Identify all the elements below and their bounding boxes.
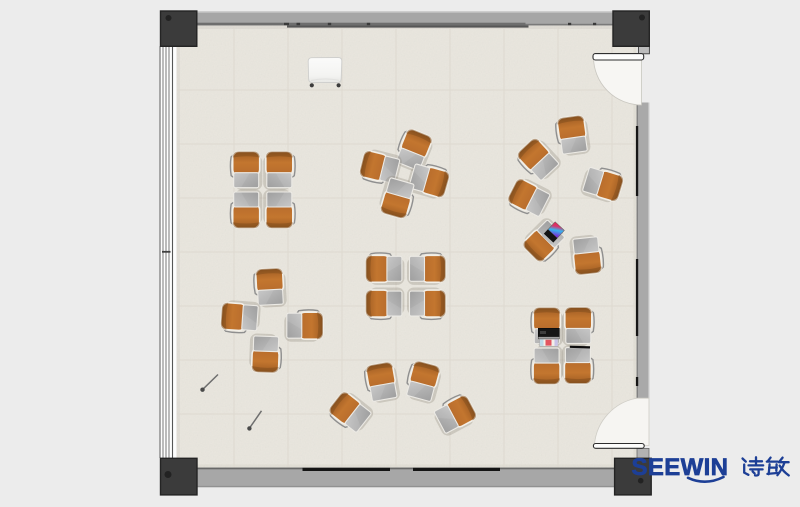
svg-text:SEEWIN: SEEWIN: [632, 454, 729, 481]
